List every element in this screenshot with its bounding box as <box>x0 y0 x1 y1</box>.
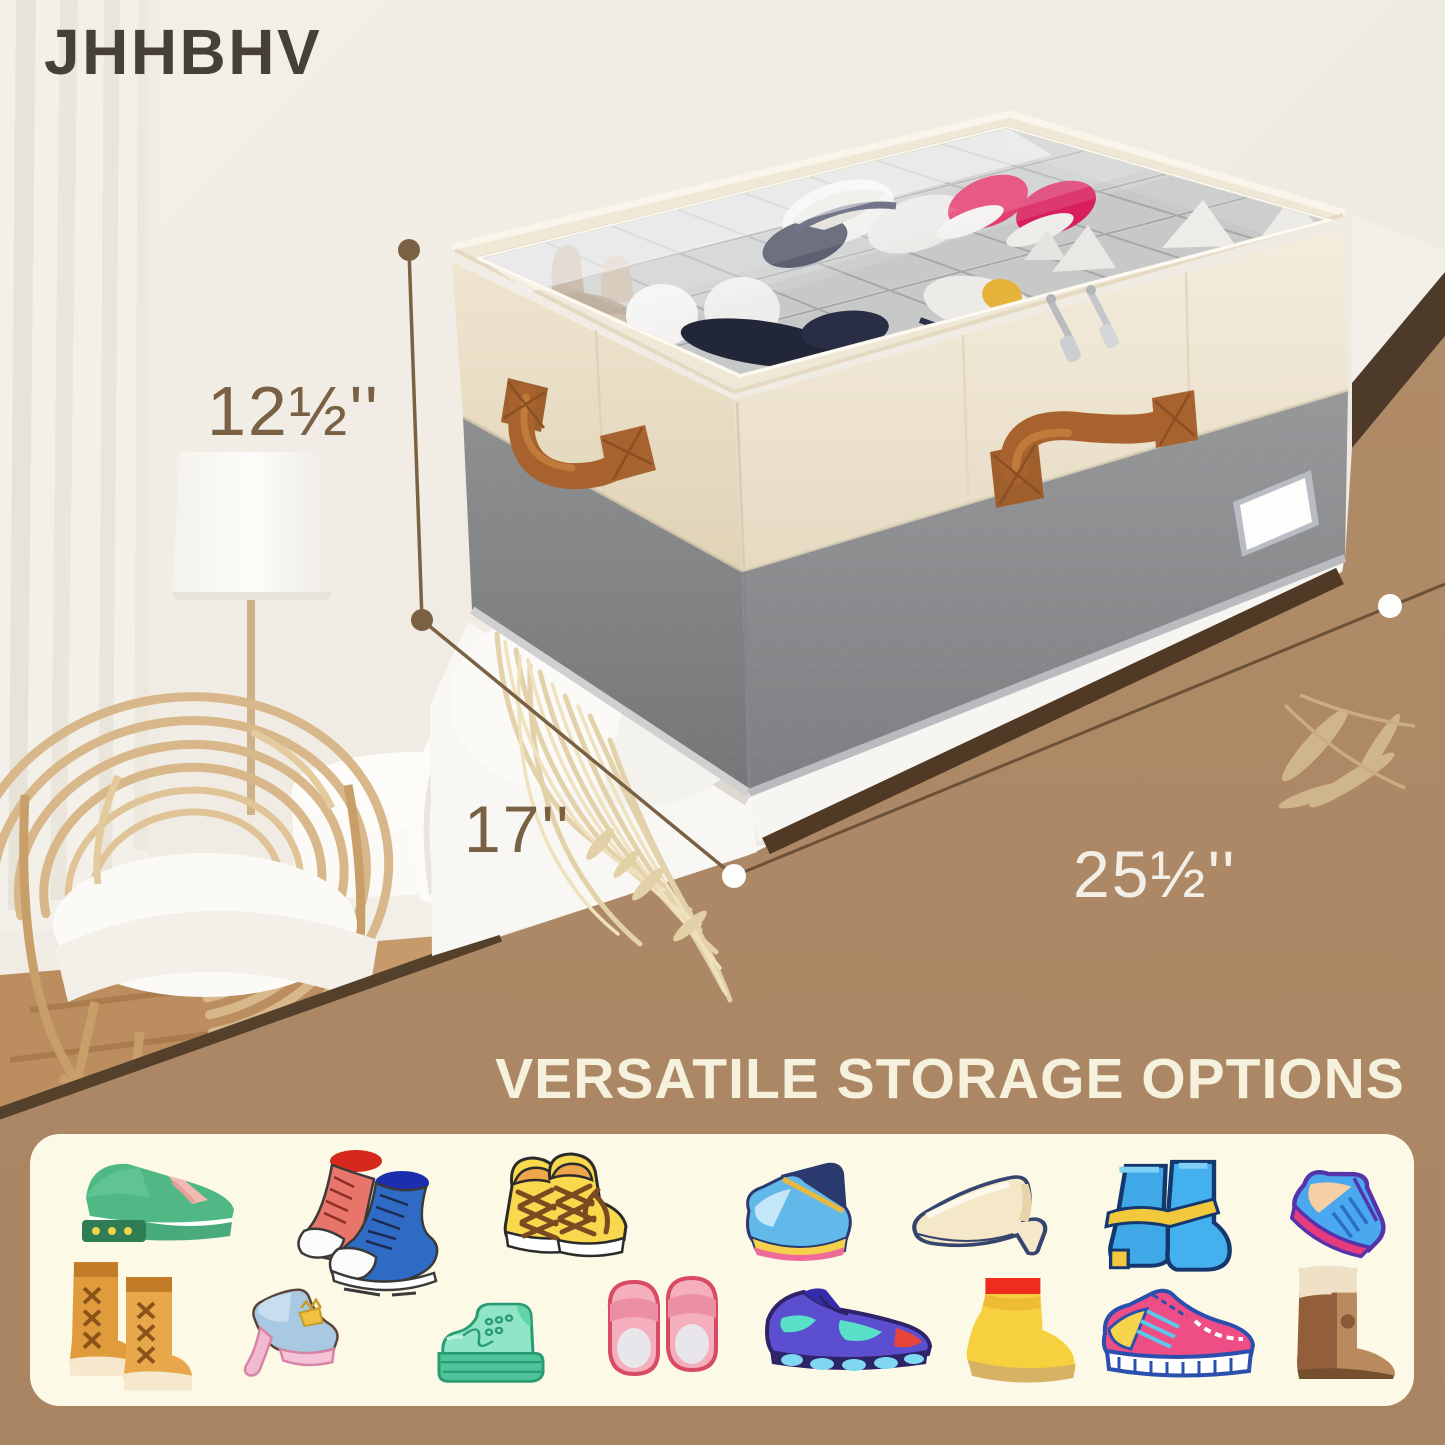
svg-text:VERSATILE STORAGE OPTIONS: VERSATILE STORAGE OPTIONS <box>495 1047 1405 1111</box>
svg-text:12½'': 12½'' <box>207 372 380 450</box>
svg-text:17'': 17'' <box>464 792 571 866</box>
svg-text:25½'': 25½'' <box>1073 837 1237 911</box>
svg-text:JHHBHV: JHHBHV <box>44 16 322 88</box>
